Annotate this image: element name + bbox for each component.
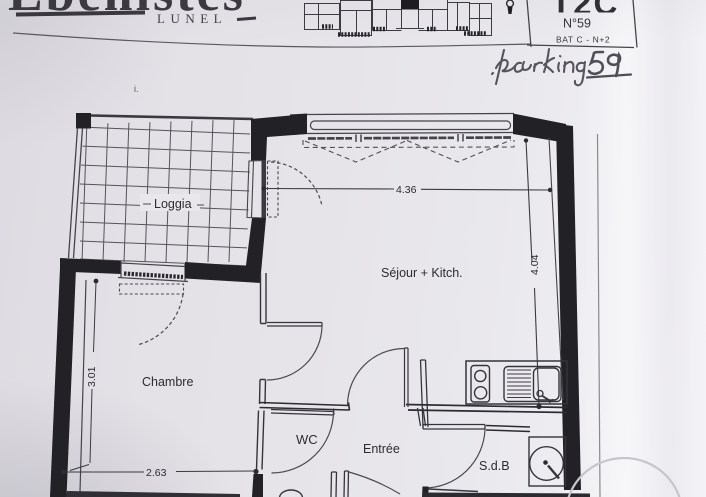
svg-text:2.63: 2.63: [146, 467, 167, 479]
svg-text:4.04: 4.04: [529, 254, 541, 275]
svg-text:Loggia: Loggia: [154, 197, 192, 211]
svg-text:WC: WC: [296, 432, 318, 447]
svg-text:Entrée: Entrée: [363, 442, 400, 456]
svg-text:Séjour + Kitch.: Séjour + Kitch.: [381, 266, 463, 280]
svg-text:i.: i.: [134, 84, 139, 94]
svg-text:N°59: N°59: [563, 17, 591, 31]
svg-text:Chambre: Chambre: [142, 375, 193, 389]
svg-text:3.01: 3.01: [86, 366, 98, 387]
svg-text:4.36: 4.36: [396, 184, 417, 196]
svg-text:S.d.B: S.d.B: [479, 459, 510, 473]
svg-text:LUNEL: LUNEL: [157, 11, 227, 26]
svg-text:BAT C - N+2: BAT C - N+2: [556, 35, 610, 45]
